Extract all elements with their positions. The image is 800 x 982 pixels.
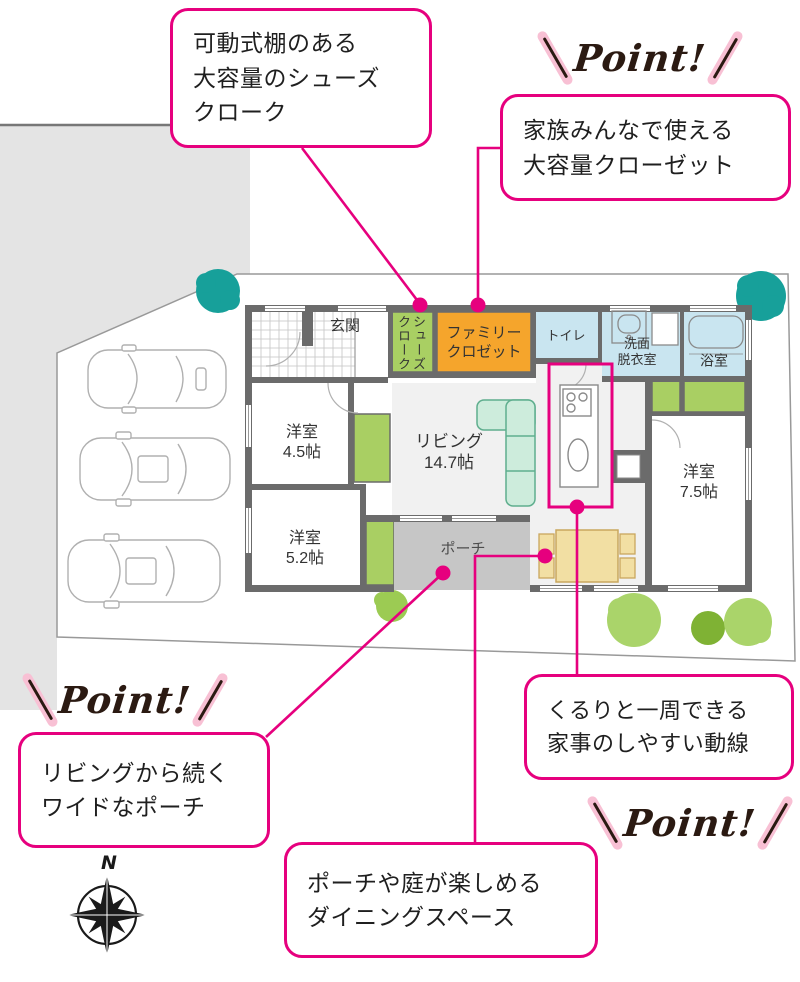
callout-shoes-closet: 可動式棚のある 大容量のシューズ クローク [170, 8, 432, 148]
car-icon [68, 534, 220, 608]
dining-table [556, 530, 618, 582]
point-dot [413, 298, 428, 313]
label-family-closet: ファミリー クロゼット [446, 324, 521, 362]
label-toilet: トイレ [546, 328, 585, 344]
label-washroom: 洗面 脱衣室 [617, 336, 656, 369]
label-genkan: 玄関 [330, 318, 360, 337]
label-room-4-5: 洋室 4.5帖 [283, 423, 321, 463]
point-label: Point! [57, 678, 193, 722]
floor-plan-advertisement: N 玄関 シューズクローク ファミリー クロゼット トイレ 洗面 脱衣室 浴室 … [0, 0, 800, 982]
dark-green-tree-icon [691, 611, 725, 645]
closet-green [354, 414, 390, 482]
label-porch: ポーチ [440, 541, 485, 560]
point-dot [570, 500, 585, 515]
closet-green [366, 520, 394, 585]
slash-icon [706, 30, 745, 87]
chair [620, 534, 635, 554]
label-living: リビング 14.7帖 [415, 431, 483, 474]
callout-flow-text: くるりと一周できる 家事のしやすい動線 [547, 694, 749, 760]
car-icons [68, 345, 230, 608]
label-bath: 浴室 [700, 352, 728, 370]
callout-flow: くるりと一周できる 家事のしやすい動線 [524, 674, 794, 780]
label-shoes-closet: シューズクローク [396, 314, 426, 372]
slash-icon [756, 795, 795, 852]
point-mark-bottom-right: Point! [575, 783, 800, 863]
callout-porch: リビングから続く ワイドなポーチ [18, 732, 270, 848]
point-mark-top: Point! [530, 16, 750, 100]
slash-icon [21, 672, 60, 729]
point-dot [471, 298, 486, 313]
callout-family-closet: 家族みんなで使える 大容量クローゼット [500, 94, 791, 201]
green-tree-icon [724, 598, 772, 646]
callout-shoes-closet-text: 可動式棚のある 大容量のシューズ クローク [193, 26, 380, 130]
compass-icon: N [67, 852, 147, 955]
green-tree-icon [607, 593, 661, 647]
callout-family-closet-text: 家族みんなで使える 大容量クローゼット [523, 113, 735, 182]
label-room-5-2: 洋室 5.2帖 [286, 529, 324, 569]
callout-porch-text: リビングから続く ワイドなポーチ [41, 756, 229, 825]
kitchen-island [560, 385, 598, 487]
slash-icon [586, 795, 625, 852]
closet-green [684, 380, 745, 412]
car-icon [80, 432, 230, 506]
callout-dining-text: ポーチや庭が楽しめる ダイニングスペース [307, 866, 542, 935]
compass-north-label: N [101, 852, 117, 874]
callout-dining: ポーチや庭が楽しめる ダイニングスペース [284, 842, 598, 958]
point-dot [436, 566, 451, 581]
slash-icon [191, 672, 230, 729]
label-room-7-5: 洋室 7.5帖 [680, 463, 718, 503]
slash-icon [536, 30, 575, 87]
chair [620, 558, 635, 578]
point-dot [538, 549, 553, 564]
car-icon [88, 345, 226, 413]
point-mark-bottom-left: Point! [10, 660, 240, 740]
point-label: Point! [622, 801, 758, 845]
closet-green [652, 380, 680, 412]
teal-tree-icon [196, 269, 240, 313]
point-label: Point! [572, 36, 708, 80]
